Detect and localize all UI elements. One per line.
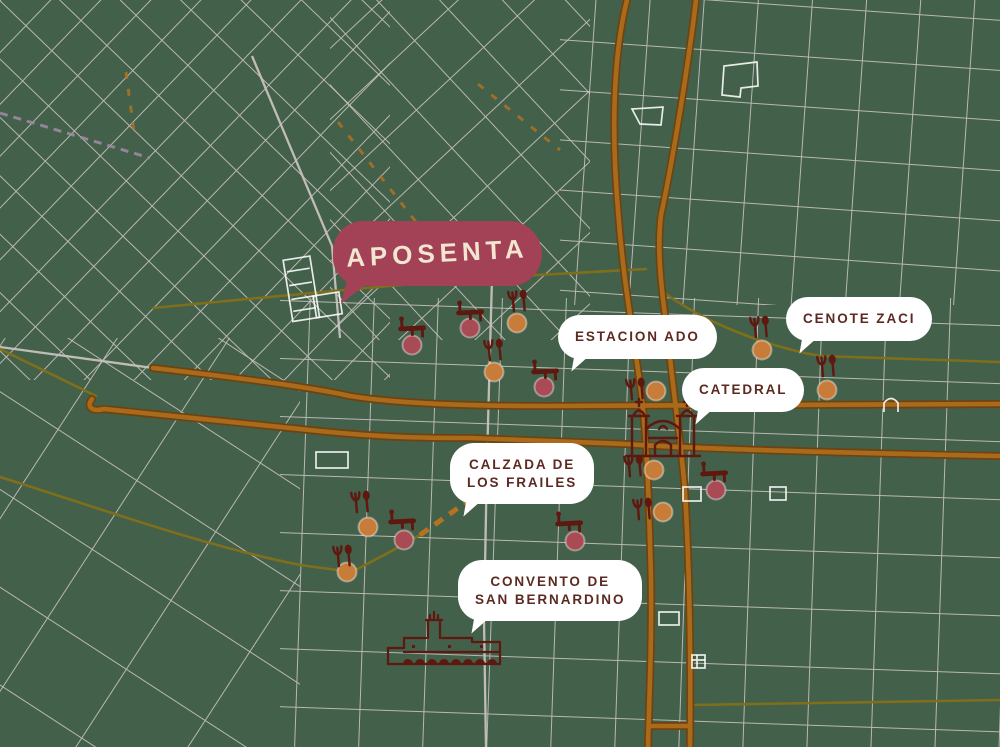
brand-bubble-aposenta[interactable]: APOSENTA [333,221,542,286]
hotel-dot[interactable] [535,378,554,397]
hotel-dot[interactable] [707,481,726,500]
label-text: CENOTE ZACI [803,311,915,326]
hotel-dot[interactable] [566,532,585,551]
restaurant-dot[interactable] [338,563,357,582]
brand-name: APOSENTA [345,233,529,274]
restaurant-dot[interactable] [485,363,504,382]
label-text-line2: LOS FRAILES [467,474,577,492]
hotel-dot[interactable] [403,336,422,355]
hotel-dot[interactable] [461,319,480,338]
label-text-line1: CONVENTO DE [475,573,625,591]
label-calzada-de-los-frailes[interactable]: CALZADA DE LOS FRAILES [450,443,594,504]
restaurant-dot[interactable] [654,503,673,522]
restaurant-dot[interactable] [508,314,527,333]
restaurant-dot[interactable] [647,382,666,401]
label-text: ESTACION ADO [575,329,700,344]
restaurant-dot[interactable] [818,381,837,400]
label-catedral[interactable]: CATEDRAL [682,368,804,412]
label-text-line1: CALZADA DE [467,456,577,474]
hotel-dot[interactable] [395,531,414,550]
label-estacion-ado[interactable]: ESTACION ADO [558,315,717,359]
restaurant-dot[interactable] [753,341,772,360]
label-text: CATEDRAL [699,382,787,397]
restaurant-dot[interactable] [359,518,378,537]
label-text-line2: SAN BERNARDINO [475,591,625,609]
label-convento-de-san-bernardino[interactable]: CONVENTO DE SAN BERNARDINO [458,560,642,621]
map-canvas [0,0,1000,747]
restaurant-dot[interactable] [645,461,664,480]
label-cenote-zaci[interactable]: CENOTE ZACI [786,297,932,341]
illustrated-city-map: APOSENTA ESTACION ADO CATEDRAL CENOTE ZA… [0,0,1000,747]
